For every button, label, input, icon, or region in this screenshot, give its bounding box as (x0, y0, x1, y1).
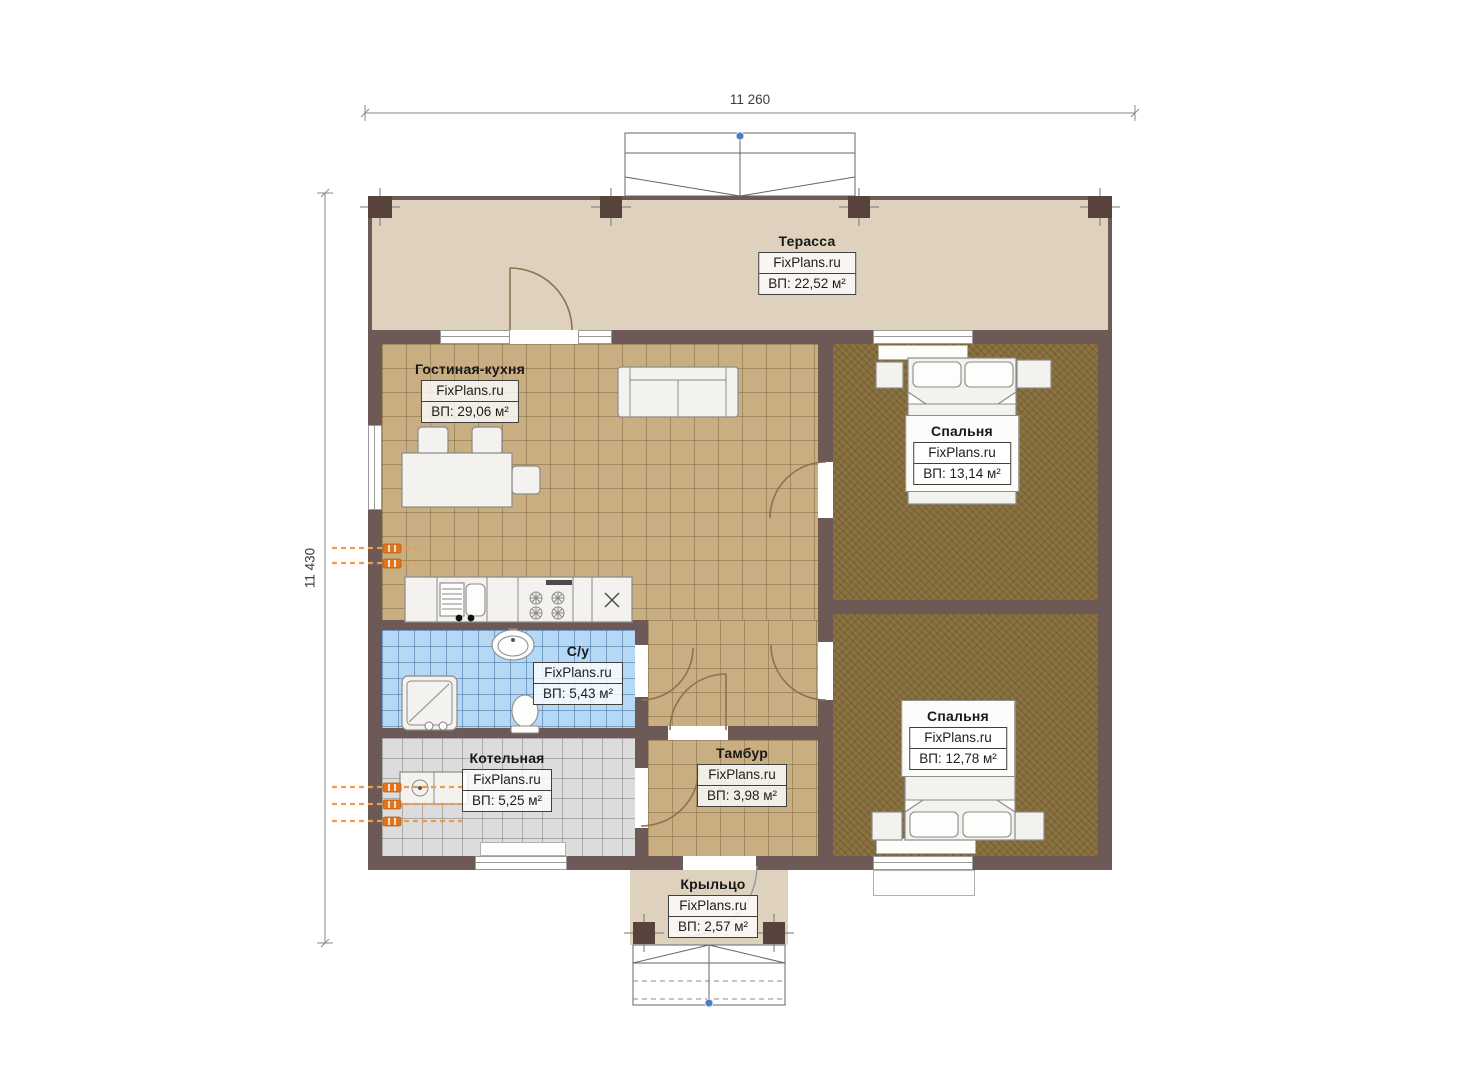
room-area: ВП: 29,06 м² (422, 402, 518, 422)
room-info-box: FixPlans.ru ВП: 5,43 м² (533, 662, 623, 705)
brand-watermark: FixPlans.ru (914, 443, 1010, 464)
room-info-box: FixPlans.ru ВП: 5,25 м² (462, 769, 552, 812)
dimension-line-top (361, 105, 1139, 121)
room-info-box: FixPlans.ru ВП: 12,78 м² (909, 727, 1007, 770)
room-name: Спальня (931, 423, 993, 439)
brand-watermark: FixPlans.ru (463, 770, 551, 791)
room-name: С/у (567, 643, 589, 659)
room-label-bedroom2: Спальня FixPlans.ru ВП: 12,78 м² (901, 700, 1015, 777)
room-info-box: FixPlans.ru ВП: 13,14 м² (913, 442, 1011, 485)
room-name: Спальня (927, 708, 989, 724)
room-area: ВП: 22,52 м² (759, 274, 855, 294)
shower-tray (402, 676, 457, 730)
room-area: ВП: 13,14 м² (914, 464, 1010, 484)
dimension-left-label: 11 430 (303, 548, 318, 588)
dimension-line-left (317, 189, 333, 947)
room-info-box: FixPlans.ru ВП: 3,98 м² (697, 764, 787, 807)
room-label-terrace: Терасса FixPlans.ru ВП: 22,52 м² (758, 233, 856, 295)
dining-set (402, 427, 540, 507)
brand-watermark: FixPlans.ru (759, 253, 855, 274)
room-label-bedroom1: Спальня FixPlans.ru ВП: 13,14 м² (905, 415, 1019, 492)
room-area: ВП: 5,43 м² (534, 684, 622, 704)
room-area: ВП: 2,57 м² (669, 917, 757, 937)
room-name: Гостиная-кухня (415, 361, 525, 377)
terrace-steps (625, 132, 855, 196)
room-label-tambour: Тамбур FixPlans.ru ВП: 3,98 м² (697, 745, 787, 807)
room-name: Крыльцо (680, 876, 745, 892)
room-label-porch: Крыльцо FixPlans.ru ВП: 2,57 м² (668, 876, 758, 938)
room-area: ВП: 12,78 м² (910, 749, 1006, 769)
brand-watermark: FixPlans.ru (534, 663, 622, 684)
room-info-box: FixPlans.ru ВП: 22,52 м² (758, 252, 856, 295)
brand-watermark: FixPlans.ru (422, 381, 518, 402)
room-label-boiler: Котельная FixPlans.ru ВП: 5,25 м² (462, 750, 552, 812)
floor-plan: 11 260 11 430 Терасса FixPlans.ru ВП: 22… (0, 0, 1474, 1080)
brand-watermark: FixPlans.ru (669, 896, 757, 917)
room-name: Тамбур (716, 745, 768, 761)
brand-watermark: FixPlans.ru (910, 728, 1006, 749)
porch-steps (633, 945, 785, 1007)
room-label-living-kitchen: Гостиная-кухня FixPlans.ru ВП: 29,06 м² (415, 361, 525, 423)
room-name: Терасса (779, 233, 836, 249)
room-area: ВП: 3,98 м² (698, 786, 786, 806)
room-info-box: FixPlans.ru ВП: 29,06 м² (421, 380, 519, 423)
room-label-bathroom: С/у FixPlans.ru ВП: 5,43 м² (533, 643, 623, 705)
kitchen-counter (405, 577, 632, 622)
room-area: ВП: 5,25 м² (463, 791, 551, 811)
room-info-box: FixPlans.ru ВП: 2,57 м² (668, 895, 758, 938)
washbasin (492, 629, 534, 660)
brand-watermark: FixPlans.ru (698, 765, 786, 786)
sofa (618, 367, 738, 417)
room-name: Котельная (469, 750, 544, 766)
dimension-top-label: 11 260 (730, 92, 770, 107)
